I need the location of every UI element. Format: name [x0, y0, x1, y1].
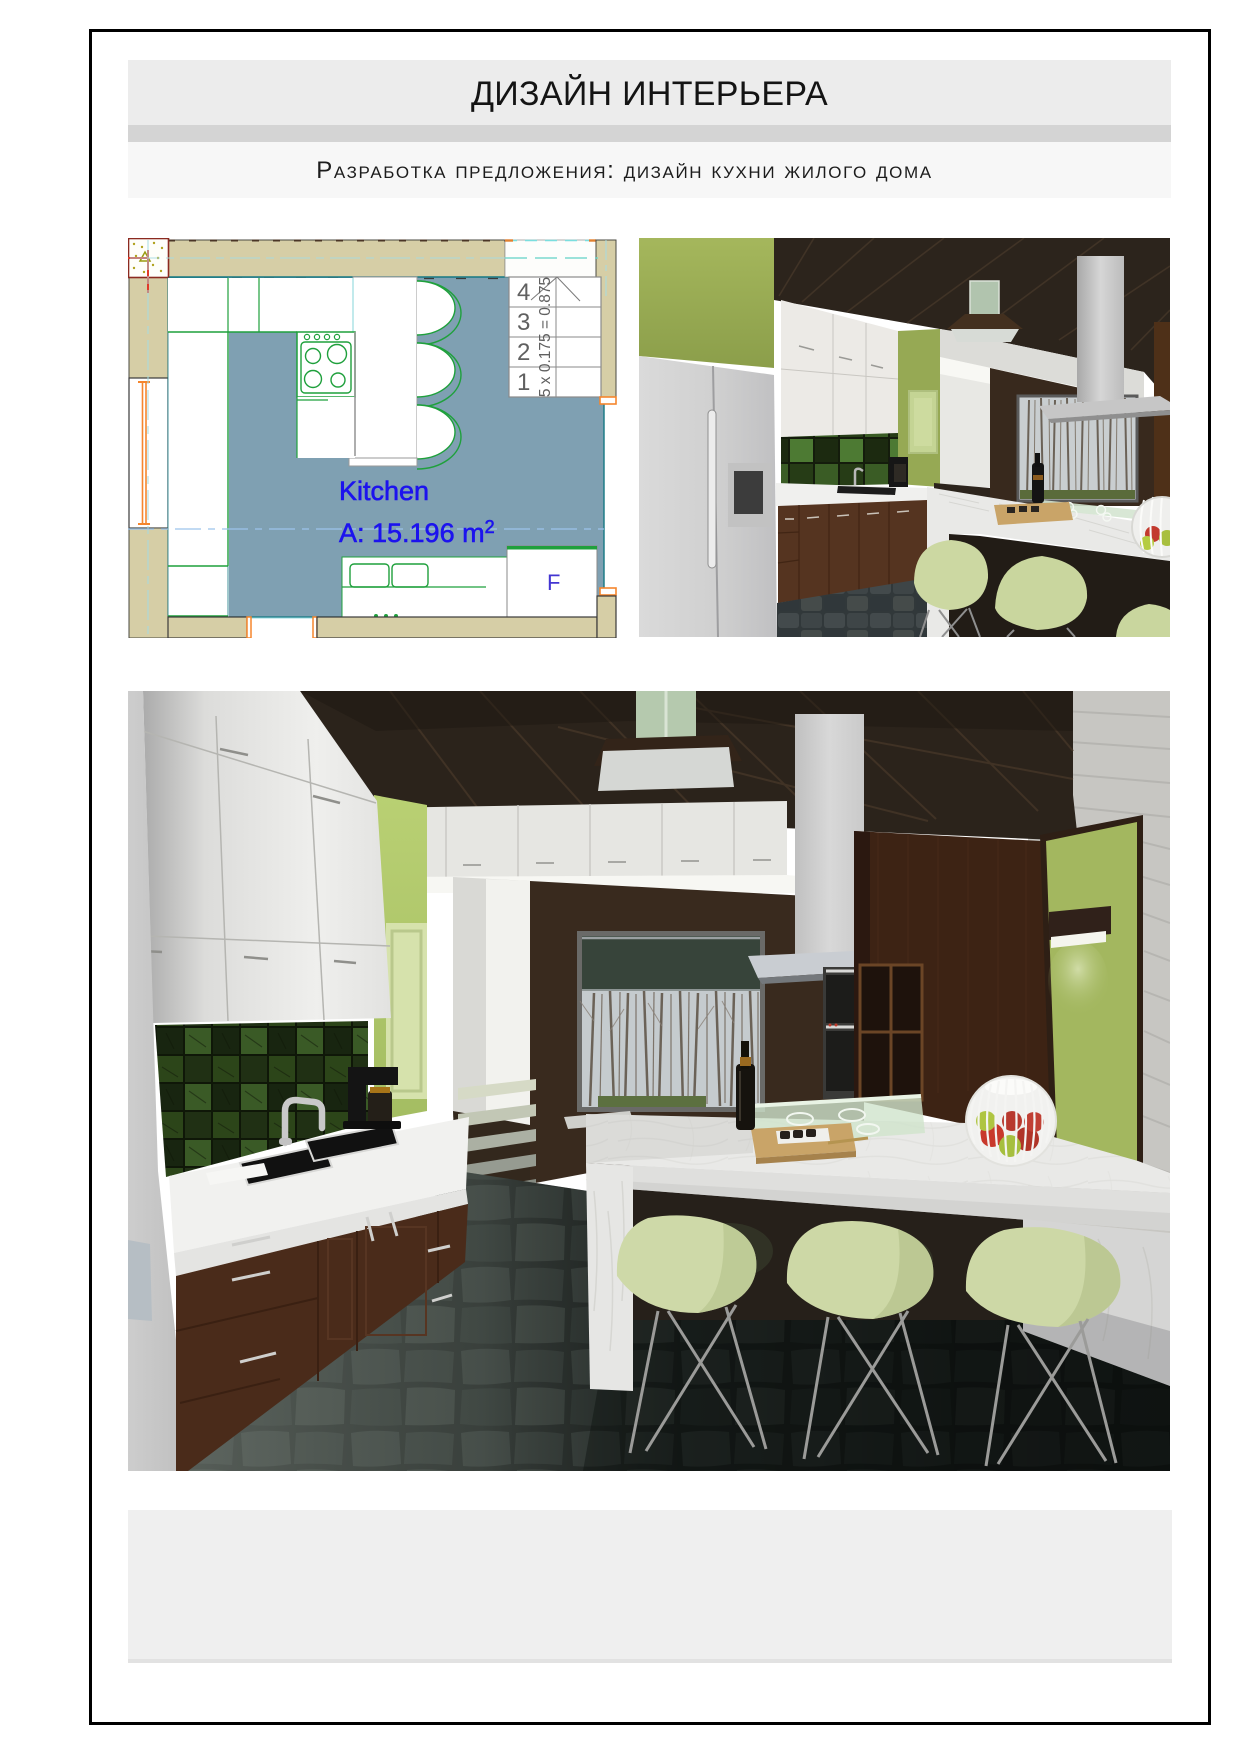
svg-text:4: 4	[517, 279, 530, 306]
svg-text:Kitchen: Kitchen	[339, 476, 429, 506]
svg-text:F: F	[547, 570, 560, 595]
svg-text:3: 3	[517, 309, 530, 336]
svg-text:A: 15.196 m2: A: 15.196 m2	[339, 517, 495, 548]
svg-text:1: 1	[517, 369, 530, 396]
svg-text:2: 2	[517, 339, 530, 366]
svg-text:5 x 0.175 = 0.875: 5 x 0.175 = 0.875	[537, 277, 554, 397]
